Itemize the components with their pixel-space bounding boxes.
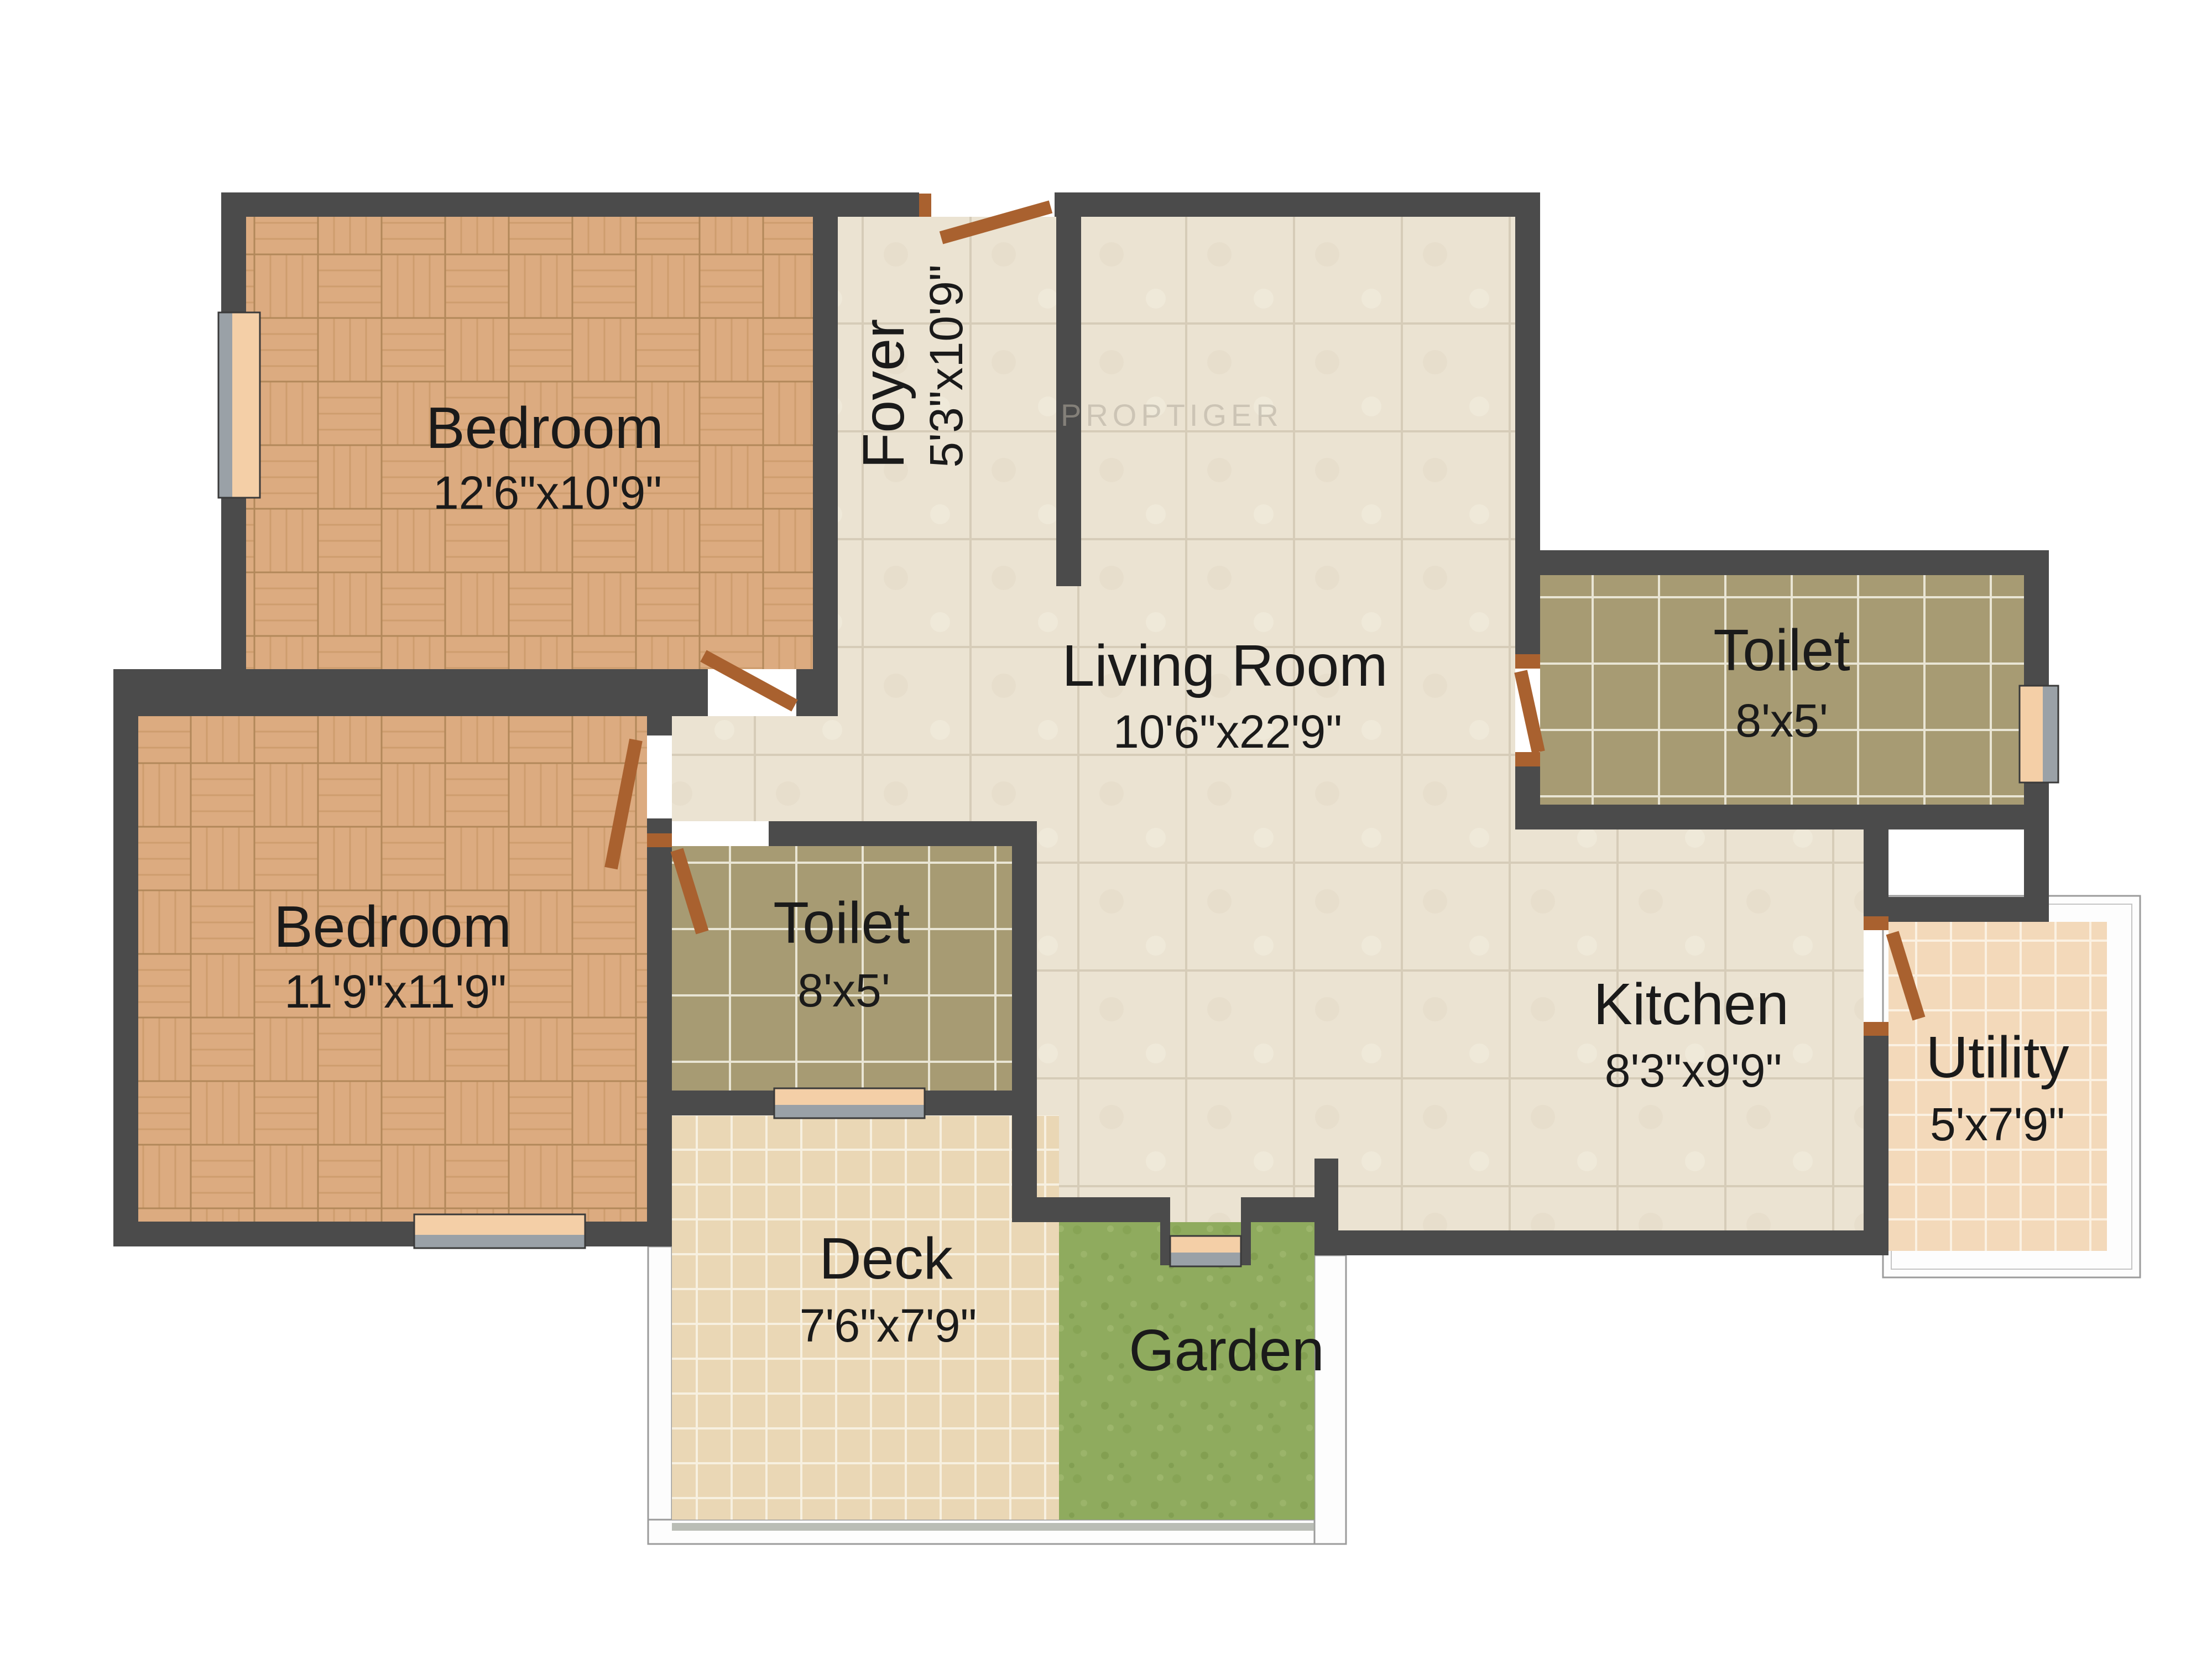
foyer-label: Foyer	[851, 319, 916, 469]
toilet-middle-window	[774, 1088, 925, 1118]
toilet-right-jamb-bottom	[1515, 752, 1540, 766]
watermark: PROPTIGER	[1061, 398, 1283, 432]
toilet-middle-jamb	[647, 833, 672, 847]
toilet-right-dims: 8'x5'	[1735, 695, 1828, 747]
utility-dims: 5'x7'9"	[1930, 1098, 2065, 1150]
bedroom-top-label: Bedroom	[426, 395, 664, 461]
toilet-right-floor	[1540, 575, 2024, 805]
living-room-label: Living Room	[1062, 633, 1387, 698]
toilet-right-jamb-top	[1515, 654, 1540, 669]
bedroom-left-window	[414, 1214, 585, 1248]
entrance-jamb	[919, 194, 931, 217]
floor-plan: Bedroom 12'6"x10'9" Foyer 5'3"x10'9" Liv…	[0, 0, 2212, 1659]
railing-inner-line	[672, 1523, 1314, 1531]
floor-plan-drawing: Bedroom 12'6"x10'9" Foyer 5'3"x10'9" Liv…	[0, 0, 2212, 1659]
toilet-right-label: Toilet	[1713, 618, 1850, 683]
utility-jamb-top	[1864, 916, 1888, 930]
kitchen-dims: 8'3"x9'9"	[1605, 1045, 1782, 1097]
bedroom-left-label: Bedroom	[274, 894, 512, 959]
toilet-middle-label: Toilet	[773, 890, 910, 956]
railing-left	[648, 1246, 672, 1544]
bedroom-top-dims: 12'6"x10'9"	[433, 467, 662, 519]
deck-dims: 7'6"x7'9"	[800, 1300, 977, 1352]
toilet-right-window	[2020, 686, 2058, 782]
toilet-middle-dims: 8'x5'	[797, 964, 890, 1016]
garden-bay-window	[1170, 1236, 1241, 1266]
deck-label: Deck	[819, 1226, 953, 1291]
railing-right	[1314, 1255, 1346, 1544]
foyer-dims: 5'3"x10'9"	[920, 264, 972, 467]
toilet-right-door	[1521, 671, 1538, 752]
garden-label: Garden	[1129, 1318, 1324, 1383]
bedroom-top-window	[218, 312, 260, 498]
kitchen-label: Kitchen	[1593, 972, 1789, 1037]
bedroom-left-dims: 11'9"x11'9"	[284, 966, 507, 1018]
living-room-dims: 10'6"x22'9"	[1113, 706, 1342, 758]
utility-jamb-bottom	[1864, 1022, 1888, 1036]
utility-label: Utility	[1926, 1025, 2069, 1090]
